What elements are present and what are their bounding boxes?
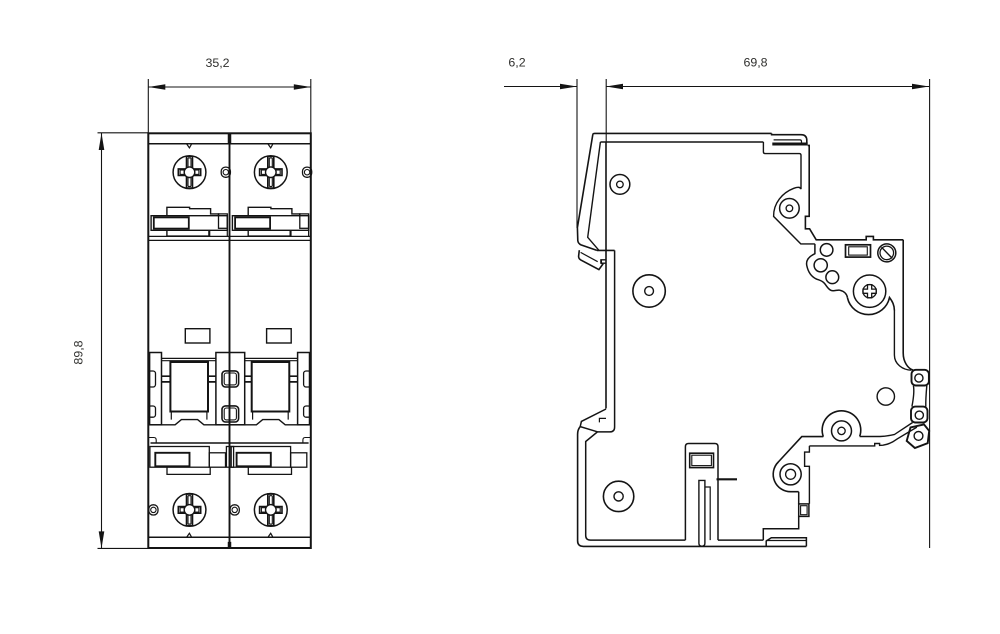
svg-text:6,2: 6,2	[508, 56, 525, 70]
svg-text:89,8: 89,8	[72, 340, 86, 364]
svg-text:35,2: 35,2	[205, 56, 229, 70]
svg-text:69,8: 69,8	[743, 56, 767, 70]
